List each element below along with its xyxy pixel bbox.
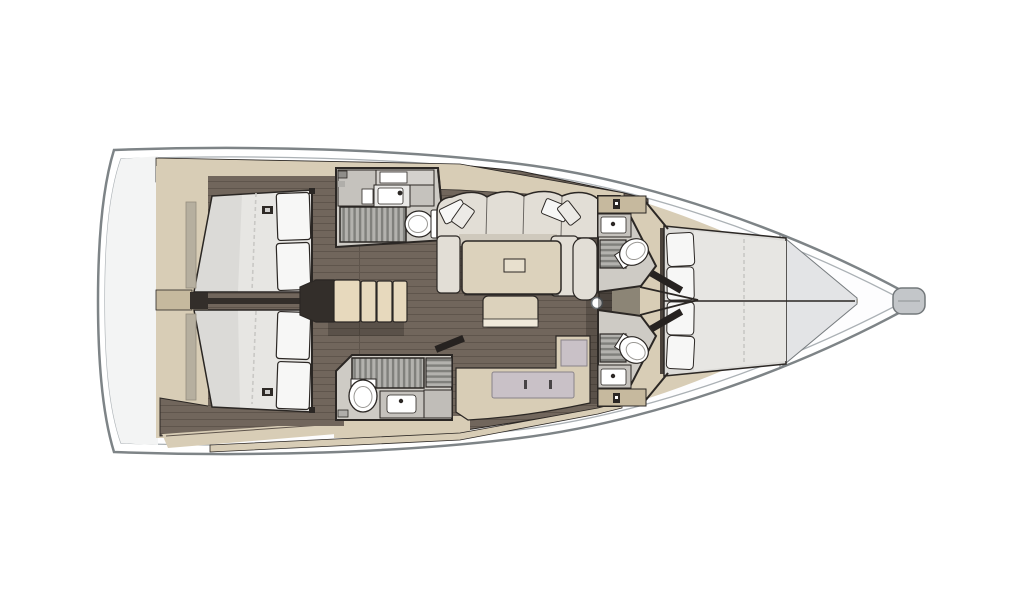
- faucet: [611, 374, 615, 378]
- cabinet: [598, 389, 646, 406]
- faucet: [398, 191, 403, 196]
- washbasin: [387, 395, 416, 413]
- cabinet: [598, 196, 646, 213]
- step: [361, 281, 376, 322]
- pillow: [276, 192, 311, 240]
- wall-fitting: [338, 171, 347, 178]
- wall-fitting: [338, 410, 348, 417]
- wall-fitting: [338, 181, 345, 187]
- sideboard-handle: [549, 380, 552, 389]
- ottoman-base: [483, 319, 538, 327]
- wardrobe-hinge: [309, 188, 315, 194]
- hanging-locker: [186, 202, 196, 288]
- step: [334, 280, 360, 322]
- soap-tray: [362, 189, 373, 204]
- cabinet-latch-dot: [615, 396, 618, 399]
- shower-grating: [340, 207, 406, 242]
- reading-light-lens: [265, 390, 270, 394]
- hanging-locker: [186, 314, 196, 400]
- shelf-tray: [380, 172, 407, 183]
- sofa-corner-chaise: [573, 238, 597, 300]
- washbasin: [378, 188, 403, 204]
- toilet: [405, 211, 433, 237]
- wardrobe-hinge: [309, 407, 315, 413]
- pillow: [276, 242, 311, 290]
- step: [393, 281, 407, 322]
- sofa-seat-left: [437, 236, 460, 293]
- faucet: [611, 222, 615, 226]
- cabinet-latch-dot: [615, 202, 618, 205]
- yacht-floorplan: Sailing yacht interior layout plan, top …: [0, 0, 1024, 600]
- stern-locker: [105, 156, 158, 445]
- pillow: [276, 361, 311, 409]
- reading-light-lens: [265, 208, 270, 212]
- locker: [424, 390, 452, 418]
- cabin-divider-trim: [156, 290, 192, 310]
- yacht-floorplan-canvas: Sailing yacht interior layout plan, top …: [0, 0, 1024, 600]
- sideboard-panel: [492, 372, 574, 398]
- landing: [300, 280, 334, 322]
- headboard-cushion: [666, 232, 695, 266]
- shower-grating: [426, 358, 452, 387]
- sideboard-handle: [524, 380, 527, 389]
- pillow: [276, 311, 311, 359]
- step: [377, 281, 392, 322]
- faucet: [399, 399, 403, 403]
- table-hatch: [504, 259, 525, 272]
- sideboard-panel: [561, 340, 587, 366]
- headboard-cushion: [666, 335, 695, 369]
